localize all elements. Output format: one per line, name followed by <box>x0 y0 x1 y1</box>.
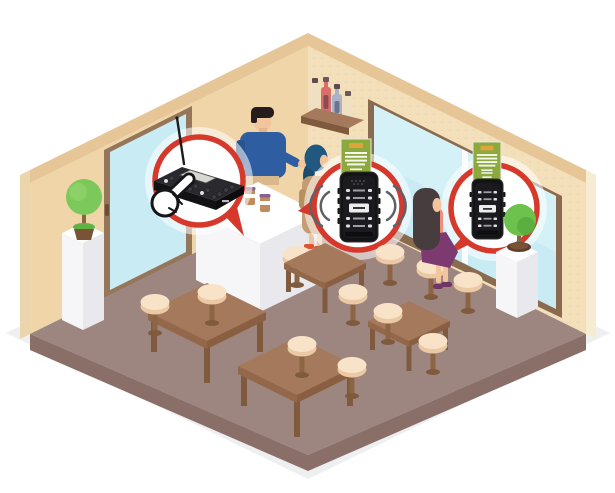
door-handle <box>105 204 109 216</box>
coffee-cup <box>260 194 271 212</box>
pedestal <box>496 242 538 318</box>
cafe-illustration <box>0 0 615 493</box>
woman-face <box>433 198 442 212</box>
transmitter-label <box>222 200 229 202</box>
left-wall-outer-edge <box>20 170 30 339</box>
right-wall-outer-edge <box>586 170 596 339</box>
cafe-illustration-svg <box>0 0 615 493</box>
woman-shoe <box>433 284 443 289</box>
woman-hair <box>413 188 440 250</box>
promo-banner <box>473 142 501 182</box>
coaster-pager <box>470 179 506 239</box>
barista-hand <box>298 160 306 168</box>
barista-hair-side <box>251 112 257 123</box>
